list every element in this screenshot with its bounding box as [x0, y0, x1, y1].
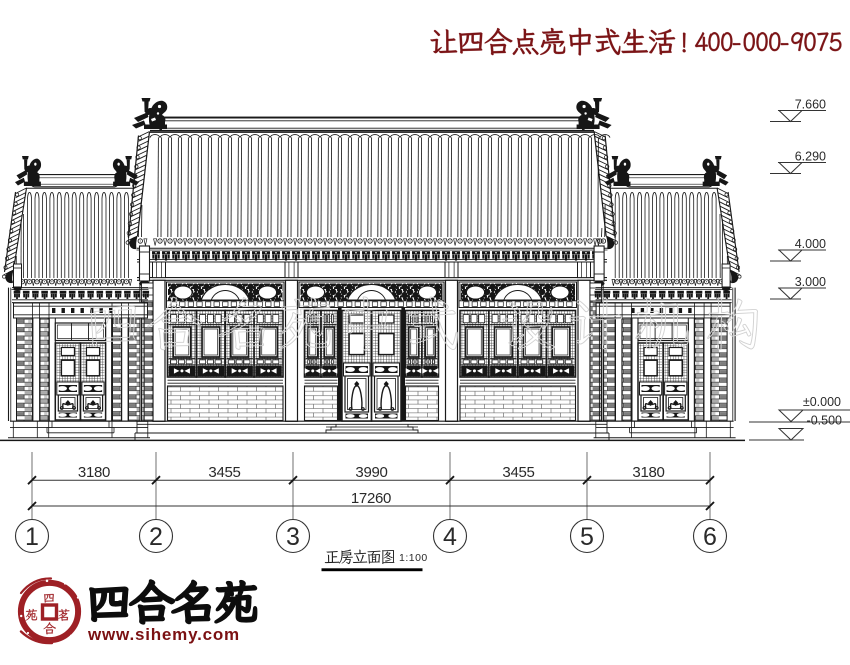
svg-text:3: 3: [286, 523, 300, 551]
svg-text:5: 5: [580, 523, 594, 551]
svg-text:4: 4: [443, 523, 457, 551]
svg-text:www.sihemy.com: www.sihemy.com: [87, 625, 240, 644]
svg-text:17260: 17260: [351, 490, 391, 507]
svg-text:±0.000: ±0.000: [803, 395, 841, 409]
svg-text:-0.500: -0.500: [807, 414, 842, 428]
svg-text:6.290: 6.290: [795, 149, 826, 163]
svg-text:3990: 3990: [355, 464, 387, 481]
svg-text:4.000: 4.000: [795, 237, 826, 251]
svg-text:3.000: 3.000: [795, 275, 826, 289]
svg-text:3180: 3180: [78, 464, 110, 481]
svg-text:1:100: 1:100: [399, 552, 428, 564]
svg-text:6: 6: [703, 523, 717, 551]
svg-text:3180: 3180: [632, 464, 664, 481]
svg-text:3455: 3455: [502, 464, 534, 481]
svg-text:7.660: 7.660: [795, 97, 826, 111]
svg-text:3455: 3455: [208, 464, 240, 481]
svg-text:2: 2: [149, 523, 163, 551]
svg-text:1: 1: [25, 523, 39, 551]
